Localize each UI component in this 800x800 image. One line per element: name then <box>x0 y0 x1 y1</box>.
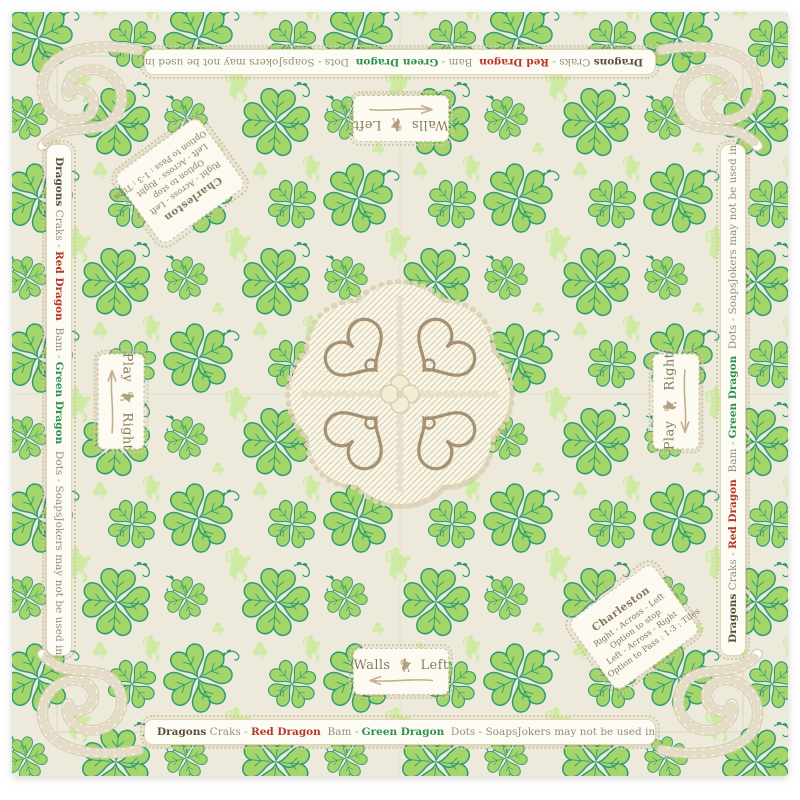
suit-legend-strip-right: Dragons Craks - Red Dragon Bam - Green D… <box>720 144 746 656</box>
lion-icon <box>663 398 677 414</box>
legend-green-dragon: Green Dragon <box>362 726 445 738</box>
left-label: Left <box>354 118 382 133</box>
lion-icon <box>388 118 404 132</box>
legend-craks: Craks - <box>549 56 594 68</box>
legend-red-dragon: Red Dragon <box>251 726 321 738</box>
jokers-rule-text: Jokers may not be used in singles or pai… <box>144 56 283 68</box>
legend-dragons: Dragons <box>53 157 65 206</box>
walls-left-card-bottom: Walls Left <box>353 648 449 695</box>
legend-craks: Craks - <box>206 726 251 738</box>
play-label: Play <box>120 353 135 383</box>
legend-dragons: Dragons <box>594 56 643 68</box>
legend-bam: Bam - <box>53 321 65 362</box>
legend-dragons: Dragons <box>157 726 206 738</box>
play-right-card-right: Play Right <box>653 354 700 450</box>
suit-legend-strip-bottom: Dragons Craks - Red Dragon Bam - Green D… <box>144 719 656 745</box>
lion-icon <box>398 658 414 672</box>
legend-green-dragon: Green Dragon <box>356 56 439 68</box>
suit-legend-strip-top: Dragons Craks - Red Dragon Bam - Green D… <box>144 49 656 75</box>
legend-bam: Bam - <box>321 726 362 738</box>
jokers-rule-text: Jokers may not be used in singles or pai… <box>727 144 739 283</box>
legend-red-dragon: Red Dragon <box>479 56 549 68</box>
suit-legend-text: Dragons Craks - Red Dragon Bam - Green D… <box>727 283 739 643</box>
walls-left-card-top: Walls Left <box>353 95 449 142</box>
long-left-arrow-icon <box>107 366 118 438</box>
legend-bam: Bam - <box>438 56 479 68</box>
legend-dots: Dots - Soaps <box>283 56 356 68</box>
play-label: Play <box>662 421 677 451</box>
walls-label: Walls <box>354 658 391 673</box>
long-left-arrow-icon <box>365 105 437 116</box>
walls-label: Walls <box>411 118 448 133</box>
jokers-rule-text: Jokers may not be used in singles or pai… <box>517 726 656 738</box>
long-left-arrow-icon <box>679 366 690 438</box>
jokers-rule-text: Jokers may not be used in singles or pai… <box>53 517 65 656</box>
legend-craks: Craks - <box>727 549 739 594</box>
legend-bam: Bam - <box>727 438 739 479</box>
right-label: Right <box>662 353 677 391</box>
suit-legend-strip-left: Dragons Craks - Red Dragon Bam - Green D… <box>46 144 72 656</box>
legend-dots: Dots - Soaps <box>53 444 65 517</box>
mahjong-mat-image: Dragons Craks - Red Dragon Bam - Green D… <box>0 0 800 800</box>
legend-dragons: Dragons <box>727 594 739 643</box>
legend-green-dragon: Green Dragon <box>727 356 739 439</box>
suit-legend-text: Dragons Craks - Red Dragon Bam - Green D… <box>283 56 643 68</box>
suit-legend-text: Dragons Craks - Red Dragon Bam - Green D… <box>157 726 517 738</box>
suit-legend-text: Dragons Craks - Red Dragon Bam - Green D… <box>53 157 65 517</box>
legend-craks: Craks - <box>53 206 65 251</box>
legend-red-dragon: Red Dragon <box>53 251 65 321</box>
legend-red-dragon: Red Dragon <box>727 479 739 549</box>
left-label: Left <box>421 658 449 673</box>
right-label: Right <box>120 412 135 450</box>
legend-green-dragon: Green Dragon <box>53 362 65 445</box>
legend-dots: Dots - Soaps <box>444 726 517 738</box>
long-left-arrow-icon <box>365 675 437 686</box>
play-right-card-left: Play Right <box>98 354 145 450</box>
lion-icon <box>121 389 135 405</box>
legend-dots: Dots - Soaps <box>727 283 739 356</box>
